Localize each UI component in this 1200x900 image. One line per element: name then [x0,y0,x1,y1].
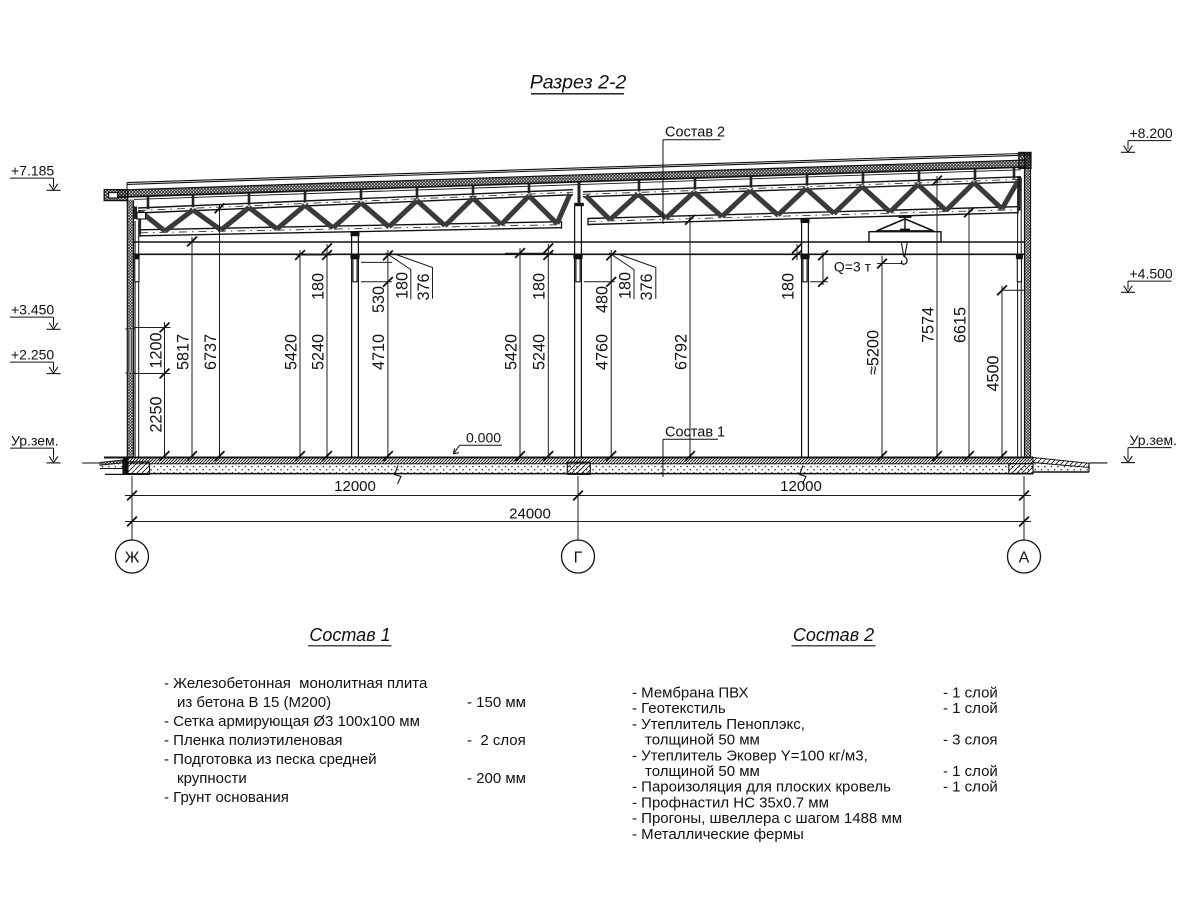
svg-text:- Подготовка из песка средней: - Подготовка из песка средней [164,751,377,768]
svg-text:- 3 слоя: - 3 слоя [943,732,998,749]
svg-text:530: 530 [370,286,388,313]
svg-text:- Пароизоляция для плоских кро: - Пароизоляция для плоских кровель [632,779,891,796]
svg-text:4760: 4760 [593,334,611,370]
svg-text:- 2 слоя: - 2 слоя [467,732,526,749]
svg-text:толщиной 50 мм: толщиной 50 мм [645,763,760,780]
svg-text:6737: 6737 [202,334,220,370]
svg-text:из бетона В 15 (М200): из бетона В 15 (М200) [177,694,331,711]
svg-text:6615: 6615 [951,307,969,343]
svg-text:- Железобетонная монолитная п: - Железобетонная монолитная плита [164,675,428,692]
svg-text:- 1 слой: - 1 слой [943,685,998,702]
svg-text:5420: 5420 [502,334,520,370]
svg-text:крупности: крупности [177,770,247,787]
svg-text:Г: Г [574,550,583,567]
svg-text:4500: 4500 [984,355,1002,391]
svg-text:- Металлические фермы: - Металлические фермы [632,826,804,843]
svg-text:- 150 мм: - 150 мм [467,694,526,711]
svg-text:+8.200: +8.200 [1130,125,1173,141]
svg-text:12000: 12000 [334,478,376,495]
svg-text:- Утеплитель Пеноплэкс,: - Утеплитель Пеноплэкс, [632,716,805,733]
svg-text:5240: 5240 [531,334,549,370]
svg-text:- Мембрана ПВХ: - Мембрана ПВХ [632,685,749,702]
svg-text:Состав 1: Состав 1 [665,425,725,441]
svg-text:- Грунт основания: - Грунт основания [164,789,289,806]
svg-text:- 1 слой: - 1 слой [943,779,998,796]
svg-text:180: 180 [393,272,411,299]
svg-text:+7.185: +7.185 [11,163,54,179]
svg-text:5420: 5420 [282,334,300,370]
svg-text:4710: 4710 [370,334,388,370]
svg-text:- Геотекстиль: - Геотекстиль [632,700,726,717]
svg-text:≈5200: ≈5200 [864,330,882,375]
svg-text:толщиной 50 мм: толщиной 50 мм [645,732,760,749]
svg-text:Состав 2: Состав 2 [793,625,874,645]
svg-text:А: А [1019,550,1030,567]
svg-text:+3.450: +3.450 [11,302,54,318]
svg-text:480: 480 [593,286,611,313]
svg-text:+2.250: +2.250 [11,347,54,363]
svg-text:Q=3 т: Q=3 т [834,259,872,275]
svg-text:- Сетка армирующая Ø3 100х100: - Сетка армирующая Ø3 100х100 мм [164,713,420,730]
svg-text:- Пленка полиэтиленовая: - Пленка полиэтиленовая [164,732,343,749]
svg-text:- 1 слой: - 1 слой [943,700,998,717]
svg-text:180: 180 [779,273,797,300]
svg-text:180: 180 [531,273,549,300]
svg-text:- 200 мм: - 200 мм [467,770,526,787]
svg-text:Ур.зем.: Ур.зем. [1130,432,1178,448]
svg-text:7574: 7574 [919,307,937,343]
svg-text:- Профнастил НС 35х0.7 мм: - Профнастил НС 35х0.7 мм [632,794,829,811]
svg-text:Разрез 2-2: Разрез 2-2 [530,72,627,94]
svg-text:180: 180 [309,273,327,300]
svg-text:+4.500: +4.500 [1130,266,1173,282]
svg-text:2250: 2250 [147,396,165,432]
svg-text:6792: 6792 [672,334,690,370]
svg-text:Ж: Ж [125,550,140,567]
svg-text:- 1 слой: - 1 слой [943,763,998,780]
svg-text:1200: 1200 [147,332,165,368]
svg-text:Состав 1: Состав 1 [309,625,390,645]
svg-text:24000: 24000 [509,506,551,523]
svg-text:- Прогоны, швеллера с шагом 14: - Прогоны, швеллера с шагом 1488 мм [632,810,902,827]
svg-text:Состав 2: Состав 2 [665,125,725,141]
svg-text:0.000: 0.000 [466,430,501,446]
svg-text:376: 376 [638,273,656,300]
svg-text:180: 180 [616,272,634,299]
svg-text:376: 376 [415,273,433,300]
svg-text:- Утеплитель Эковер Y=100 кг/м: - Утеплитель Эковер Y=100 кг/м3, [632,747,868,764]
svg-text:Ур.зем.: Ур.зем. [11,433,59,449]
svg-text:5817: 5817 [174,334,192,370]
svg-text:12000: 12000 [780,478,822,495]
svg-text:5240: 5240 [309,334,327,370]
